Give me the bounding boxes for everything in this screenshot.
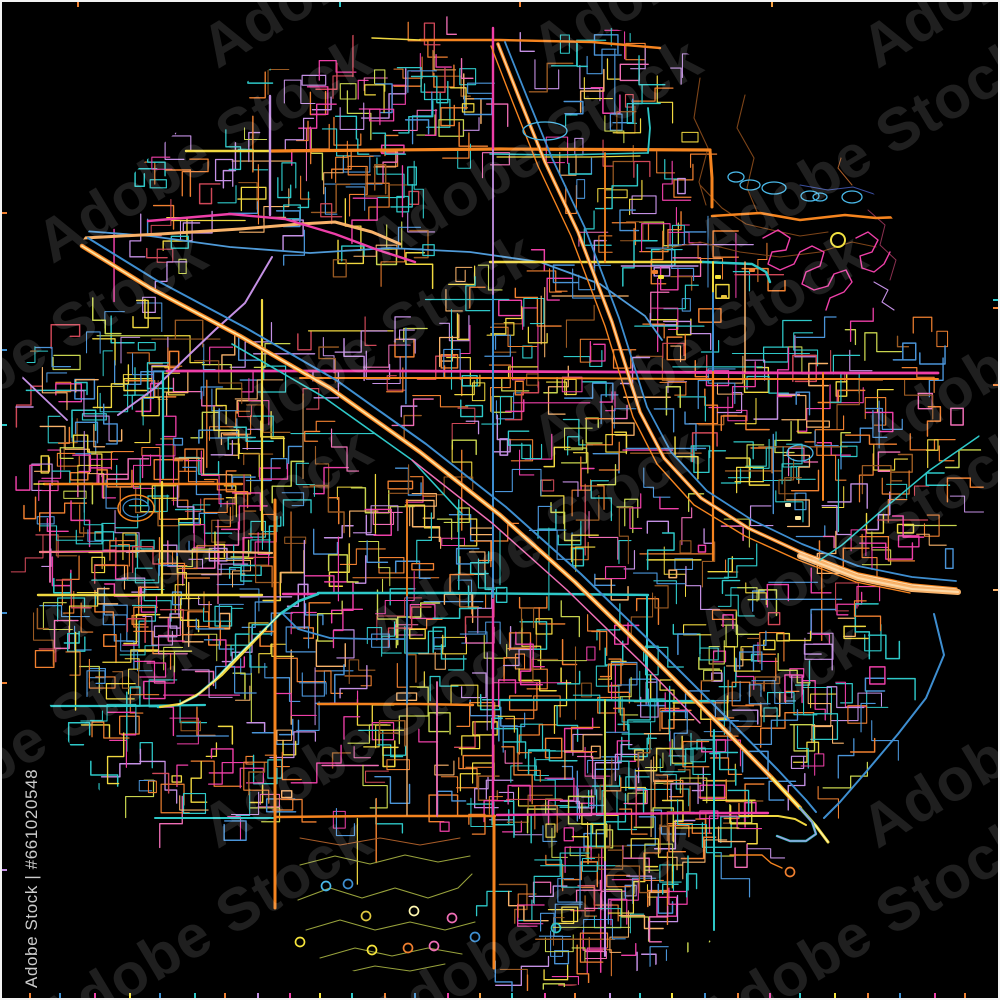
- stock-image: Adobe StockAdobe StockAdobe StockAdobe S…: [0, 0, 1000, 1000]
- building-mark: [715, 275, 721, 279]
- building-mark: [721, 295, 727, 299]
- road-orange-y816: [276, 816, 495, 817]
- road-orange-y378: [300, 378, 938, 379]
- building-mark: [652, 270, 658, 274]
- building-mark: [749, 268, 755, 272]
- building-mark: [785, 503, 791, 507]
- road-orange-y704: [318, 704, 473, 705]
- building-mark: [658, 275, 664, 279]
- adobe-stock-credit: Adobe Stock | #661020548: [22, 769, 42, 988]
- city-map-artwork: [0, 0, 1000, 1000]
- building-mark: [795, 516, 801, 520]
- road-teal-y700-right: [500, 700, 714, 701]
